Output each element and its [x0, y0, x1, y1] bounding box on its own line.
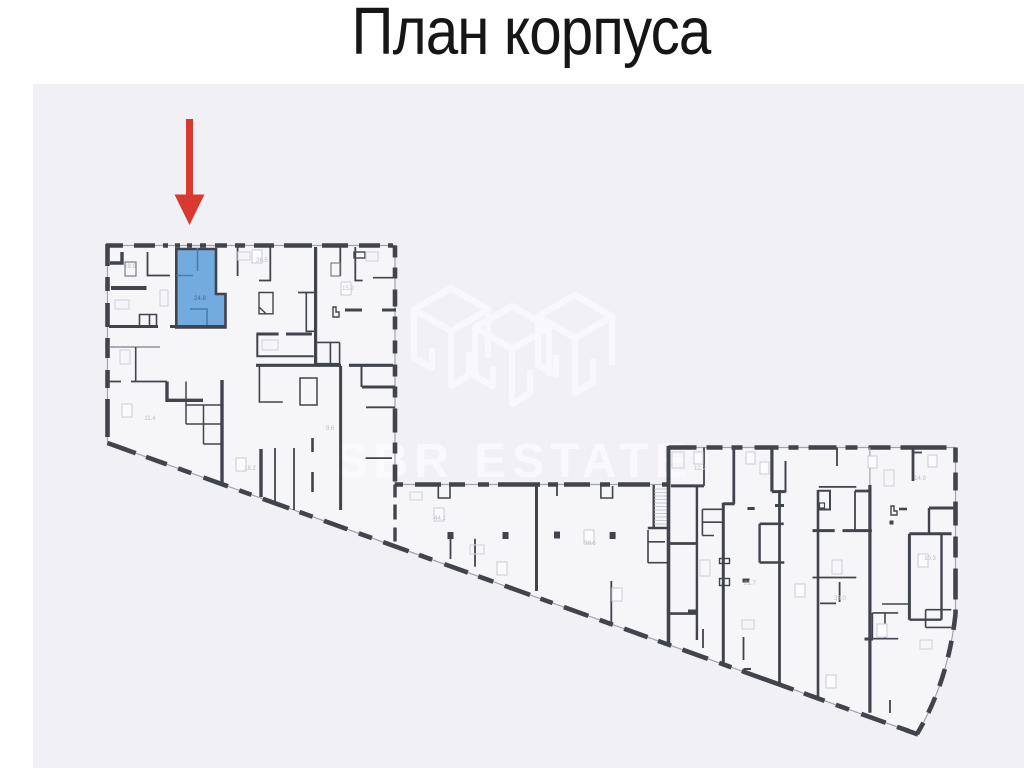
svg-text:33.0: 33.0	[834, 596, 846, 602]
svg-text:26.5: 26.5	[256, 258, 268, 264]
svg-text:44.1: 44.1	[434, 516, 446, 522]
svg-text:18.2: 18.2	[244, 466, 256, 472]
svg-text:10.3: 10.3	[924, 556, 936, 562]
svg-text:12.2: 12.2	[694, 466, 706, 472]
svg-text:11.4: 11.4	[144, 416, 156, 422]
svg-text:24.8: 24.8	[194, 296, 206, 302]
svg-text:38.6: 38.6	[584, 541, 596, 547]
svg-text:19.9: 19.9	[124, 264, 136, 270]
svg-text:9.6: 9.6	[326, 426, 335, 432]
svg-text:21.7: 21.7	[744, 581, 756, 587]
svg-text:14.9: 14.9	[914, 476, 926, 482]
svg-text:15.2: 15.2	[342, 286, 354, 292]
svg-text:SBR ESTATE: SBR ESTATE	[336, 435, 693, 488]
